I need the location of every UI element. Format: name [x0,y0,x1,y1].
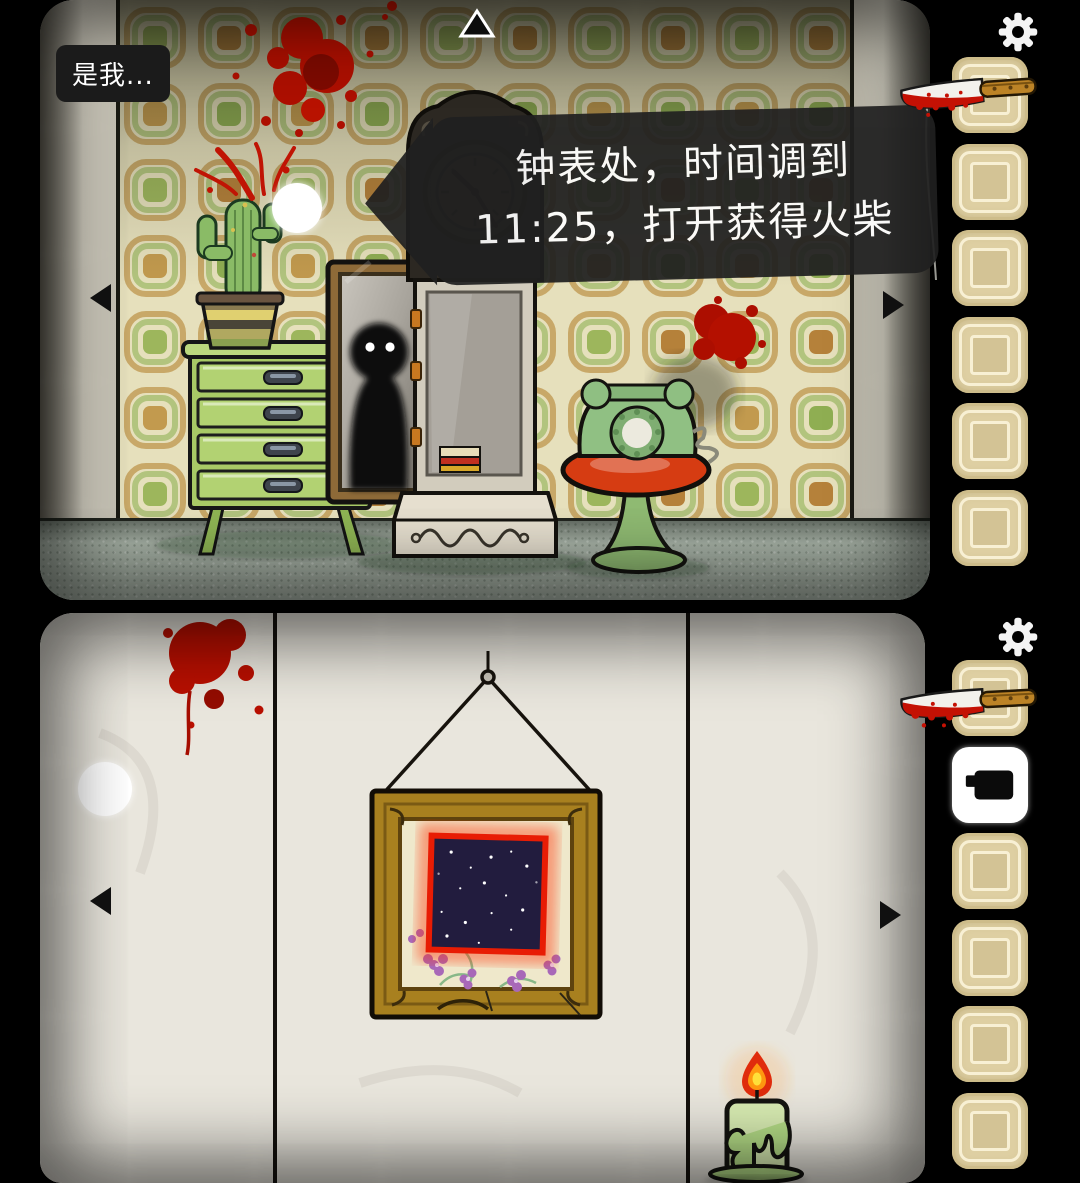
nav-right-arrow[interactable] [883,291,904,319]
inventory-slot-6[interactable] [952,1093,1028,1169]
speech-text: 是我... [72,61,154,91]
inventory-slot-6[interactable] [952,490,1028,566]
inventory-slot-3[interactable] [952,833,1028,909]
tooltip-line1: 钟表处，时间调到 [514,131,851,200]
lit-green-candle[interactable] [704,1047,808,1183]
inventory-slot-5[interactable] [952,403,1028,479]
red-stool[interactable] [563,445,709,572]
nav-right-arrow[interactable] [880,901,901,929]
lighter-item[interactable] [961,762,1019,808]
bloody-knife-item[interactable] [898,676,1041,735]
inventory-slot-2[interactable] [952,144,1028,220]
game-screen: 是我... 钟表处，时间调到 11:25，打开获得火柴 [0,0,1080,1183]
tooltip-arrow-left [363,118,437,288]
nav-left-arrow[interactable] [90,284,111,312]
hint-tooltip-clock: 钟表处，时间调到 11:25，打开获得火柴 [363,105,939,288]
gear-icon[interactable] [996,10,1040,54]
bottom-scene-drawing [40,613,925,1183]
nav-up-arrow[interactable] [458,8,496,40]
inventory-slot-3[interactable] [952,230,1028,306]
blood-drips-small [382,1,397,20]
hanging-picture-frame[interactable] [372,791,600,1017]
top-scene-drawing [40,0,930,600]
scene-bottom-fireplace-wall: 壁炉处，点燃蜡 烛，回到四季页面 [40,613,925,1183]
matchbox-in-clock[interactable] [440,447,480,472]
blood-splatter [163,619,264,755]
inventory-slot-4[interactable] [952,317,1028,393]
starry-square-with-red-glow[interactable] [425,831,550,956]
bloody-knife-item[interactable] [897,65,1040,127]
nav-left-arrow[interactable] [90,887,111,915]
scene-top-living-room: 是我... [40,0,930,600]
cactus-pot[interactable] [197,200,283,349]
inventory-slot-4[interactable] [952,920,1028,996]
blood-splatter-right [693,296,766,369]
inventory-slot-2-selected[interactable] [952,747,1028,823]
gear-icon[interactable] [996,615,1040,659]
picture-nail-and-string [381,651,595,796]
white-hint-dot[interactable] [78,762,132,816]
blood-splatter-large [233,15,374,137]
tooltip-line2: 11:25，打开获得火柴 [474,190,895,261]
inventory-slot-5[interactable] [952,1006,1028,1082]
speech-bubble: 是我... [56,45,170,102]
white-hint-dot[interactable] [272,183,322,233]
